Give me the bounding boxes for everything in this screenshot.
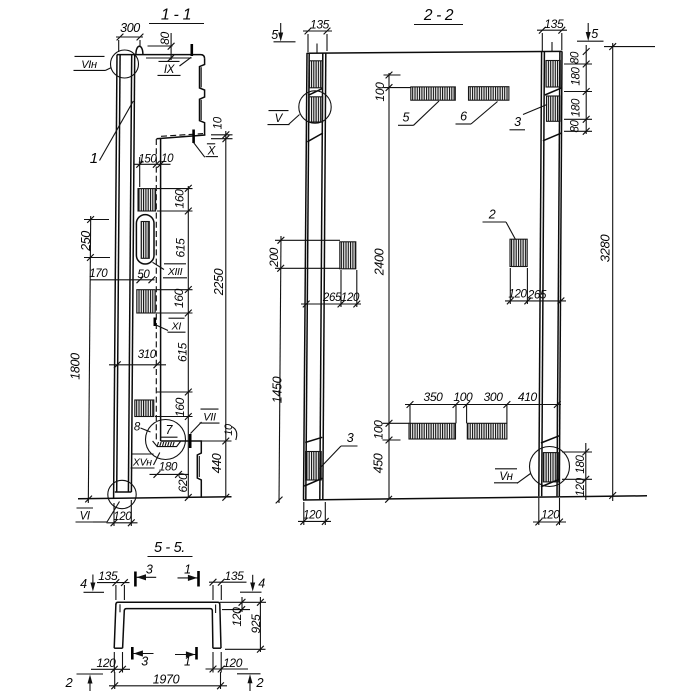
svg-text:VII: VII: [203, 412, 216, 424]
svg-text:120: 120: [303, 509, 322, 521]
svg-text:200: 200: [267, 247, 281, 268]
svg-text:Vн: Vн: [499, 471, 513, 483]
svg-text:10: 10: [223, 423, 235, 436]
svg-text:2 - 2: 2 - 2: [423, 7, 454, 24]
svg-text:3: 3: [347, 431, 354, 445]
svg-text:80: 80: [158, 32, 172, 45]
svg-text:150: 150: [138, 154, 157, 166]
svg-text:300: 300: [120, 21, 140, 35]
svg-text:5 - 5.: 5 - 5.: [154, 540, 185, 556]
svg-text:120: 120: [223, 656, 243, 670]
svg-text:160: 160: [173, 397, 187, 417]
svg-text:3: 3: [514, 115, 521, 129]
svg-text:5: 5: [402, 111, 409, 125]
svg-text:XI: XI: [171, 321, 182, 333]
svg-text:10: 10: [161, 153, 174, 165]
svg-text:440: 440: [210, 453, 224, 473]
svg-text:120: 120: [113, 511, 132, 523]
svg-text:620: 620: [176, 473, 190, 493]
svg-text:350: 350: [424, 390, 444, 404]
svg-text:1: 1: [184, 563, 191, 577]
svg-text:120: 120: [97, 656, 117, 670]
svg-text:1: 1: [184, 655, 191, 669]
svg-text:265: 265: [322, 292, 342, 304]
svg-text:135: 135: [310, 18, 330, 32]
svg-text:615: 615: [174, 238, 188, 258]
svg-text:80: 80: [570, 51, 582, 64]
svg-text:180: 180: [159, 461, 178, 473]
svg-text:250: 250: [79, 231, 93, 252]
svg-text:925: 925: [249, 614, 263, 634]
svg-text:310: 310: [138, 349, 157, 361]
svg-text:VI: VI: [80, 510, 91, 522]
svg-text:180: 180: [571, 98, 583, 117]
svg-text:1450: 1450: [271, 376, 285, 403]
svg-text:10: 10: [213, 116, 225, 129]
svg-text:170: 170: [89, 268, 108, 280]
svg-text:615: 615: [176, 342, 190, 362]
svg-text:450: 450: [371, 453, 385, 473]
svg-text:120: 120: [341, 292, 360, 304]
svg-text:135: 135: [98, 569, 118, 583]
svg-text:8: 8: [134, 422, 141, 434]
svg-text:2: 2: [255, 675, 264, 690]
svg-text:5: 5: [271, 28, 278, 42]
svg-text:XVн: XVн: [132, 456, 152, 468]
svg-text:VIн: VIн: [81, 59, 97, 71]
svg-text:2: 2: [65, 675, 74, 690]
svg-text:100: 100: [373, 82, 387, 102]
svg-text:2250: 2250: [212, 268, 226, 296]
svg-text:4: 4: [80, 577, 87, 591]
svg-text:1970: 1970: [153, 672, 180, 686]
svg-text:1800: 1800: [69, 353, 83, 380]
svg-text:2: 2: [488, 208, 496, 222]
svg-text:100: 100: [372, 420, 386, 440]
svg-text:5: 5: [591, 27, 598, 41]
svg-text:4: 4: [258, 577, 265, 591]
svg-text:3280: 3280: [598, 234, 613, 263]
svg-text:2400: 2400: [373, 248, 387, 276]
svg-text:1: 1: [90, 150, 98, 167]
svg-text:100: 100: [453, 390, 473, 404]
svg-text:120: 120: [230, 607, 244, 627]
svg-text:180: 180: [575, 454, 587, 473]
svg-text:6: 6: [460, 110, 467, 124]
svg-text:3: 3: [141, 655, 148, 669]
svg-text:265: 265: [527, 289, 547, 301]
svg-text:80: 80: [570, 120, 582, 133]
svg-text:160: 160: [173, 189, 187, 209]
svg-text:180: 180: [571, 66, 583, 85]
svg-text:120: 120: [575, 477, 587, 496]
svg-text:300: 300: [484, 390, 504, 404]
svg-text:1 - 1: 1 - 1: [161, 7, 191, 24]
svg-text:IX: IX: [164, 64, 176, 76]
svg-text:410: 410: [518, 390, 538, 404]
svg-text:XIII: XIII: [167, 266, 183, 278]
svg-text:120: 120: [508, 289, 527, 301]
svg-text:135: 135: [544, 17, 564, 31]
svg-text:3: 3: [146, 563, 153, 577]
svg-text:135: 135: [225, 569, 245, 583]
svg-text:120: 120: [541, 510, 560, 522]
svg-text:160: 160: [172, 288, 186, 308]
svg-text:50: 50: [137, 269, 150, 281]
